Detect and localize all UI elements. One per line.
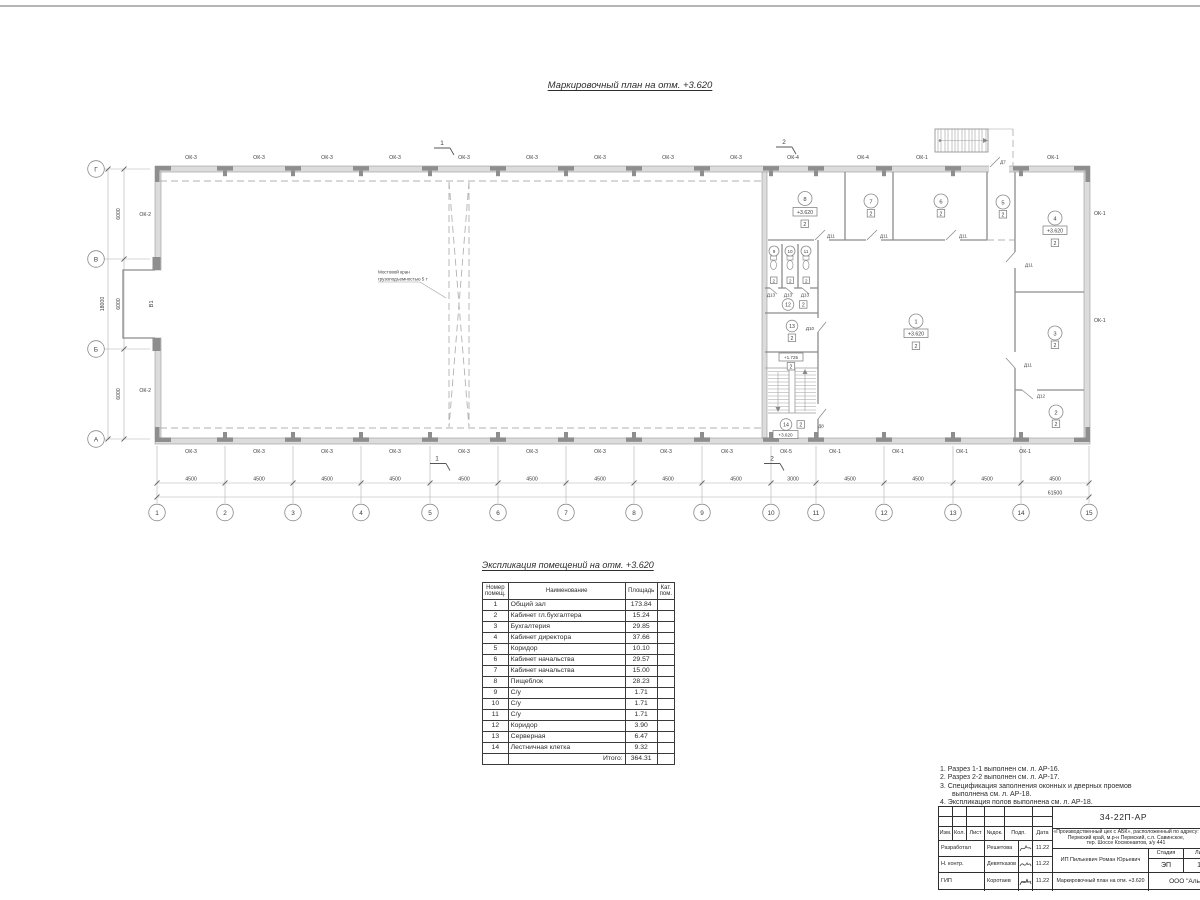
schedule-row: 3 Бухгалтерия 29.85 — [483, 622, 675, 633]
room-area-cell: 3.90 — [625, 721, 657, 732]
rev-cell — [953, 807, 967, 817]
grid-col-bubble: 9 — [700, 510, 704, 517]
person-name: Коротаев — [985, 873, 1019, 891]
room-number: 12 — [785, 303, 791, 309]
col-data: Дата — [1033, 827, 1053, 841]
room-number-cell: 3 — [483, 622, 509, 633]
door-label: Д7 — [1000, 160, 1006, 165]
room-markers: 8 +3.620 2 7 2 6 2 5 2 4 +3.620 2 1 +3.6… — [769, 192, 1067, 439]
grid-col-bubble: 5 — [428, 510, 432, 517]
note-item: 2. Разрез 2-2 выполнен см. л. АР-17. — [940, 774, 1140, 782]
room-cat-cell — [657, 721, 674, 732]
category-mark: 2 — [1054, 241, 1057, 247]
door-label: Д8 — [818, 424, 824, 429]
room-number-cell: 14 — [483, 743, 509, 754]
role-label: Разработал — [939, 841, 985, 857]
room-schedule: Номерпомещ. Наименование Площадь Кат.пом… — [482, 582, 675, 765]
sheet-label: Лист — [1184, 849, 1200, 859]
room-name-cell: Кабинет гл.бухгалтера — [508, 611, 625, 622]
window-label: ОК-1 — [1047, 155, 1059, 161]
toilet-fixture — [771, 256, 810, 270]
category-mark: 2 — [940, 211, 943, 217]
dim-bay: 4500 — [389, 477, 401, 483]
room-name-cell: Кабинет директора — [508, 633, 625, 644]
col-kol: Кол. — [953, 827, 967, 841]
room-area-cell: 1.71 — [625, 688, 657, 699]
room-cat-cell — [657, 600, 674, 611]
total-label: Итого: — [508, 754, 625, 765]
dim-bay: 4500 — [458, 477, 470, 483]
dim-bay: 4500 — [662, 477, 674, 483]
header-area: Площадь — [625, 583, 657, 600]
room-cat-cell — [657, 688, 674, 699]
window-label: ОК-3 — [526, 155, 538, 161]
grid-col-bubble: 10 — [767, 510, 775, 517]
room-number: 9 — [773, 249, 776, 254]
grid-col-bubble: 6 — [496, 510, 500, 517]
room-number: 11 — [804, 249, 809, 254]
section-mark-2: 2 — [782, 139, 786, 146]
room-name-cell: С/у — [508, 688, 625, 699]
category-mark: 2 — [791, 336, 794, 342]
grid-row-bubble: А — [94, 436, 99, 443]
room-number-cell: 4 — [483, 633, 509, 644]
door-label: Д11 — [827, 234, 835, 239]
dim-bay: 4500 — [981, 477, 993, 483]
door-label: Д10 — [806, 326, 815, 331]
schedule-row: 1 Общий зал 173.84 — [483, 600, 675, 611]
window-label: ОК-1 — [1094, 211, 1106, 217]
header-category: Кат.пом. — [657, 583, 674, 600]
room-area-cell: 37.66 — [625, 633, 657, 644]
grid-bubbles: 1 2 3 4 5 6 7 8 9 10 11 12 13 14 15 Г В … — [88, 161, 1098, 521]
window-labels: ОК-3 ОК-3 ОК-3 ОК-3 ОК-3 ОК-3 ОК-3 ОК-3 … — [139, 155, 1105, 455]
project-address: «Производственный цех с АБК», расположен… — [1053, 829, 1200, 849]
schedule-total-row: Итого: 364.31 — [483, 754, 675, 765]
grid-col-bubble: 8 — [632, 510, 636, 517]
window-label: ОК-1 — [892, 449, 904, 455]
room-name-cell: Лестничная клетка — [508, 743, 625, 754]
person-name: Решетова — [985, 841, 1019, 857]
window-label: ОК-3 — [594, 449, 606, 455]
category-mark: 2 — [773, 278, 776, 283]
floor-plan: 4500 4500 4500 4500 4500 4500 4500 4500 … — [0, 0, 1200, 545]
category-mark: 2 — [803, 222, 806, 228]
signature — [1019, 857, 1033, 873]
category-mark: 2 — [789, 278, 792, 283]
room-number: 14 — [783, 423, 789, 429]
window-label: ОК-3 — [730, 155, 742, 161]
door-label: Д11 — [1025, 263, 1033, 268]
dim-bay: 4500 — [526, 477, 538, 483]
level-mark: +3.620 — [778, 433, 793, 438]
notes-list: 1. Разрез 1-1 выполнен см. л. АР-16.2. Р… — [940, 766, 1140, 807]
section-mark-1: 1 — [435, 456, 439, 463]
rev-cell — [939, 807, 953, 817]
dim-bay: 4500 — [594, 477, 606, 483]
window-label: ОК-3 — [721, 449, 733, 455]
level-mark: +3.620 — [908, 331, 924, 337]
signature — [1019, 873, 1033, 891]
door-label: Д11 — [959, 234, 967, 239]
window-label: ОК-3 — [526, 449, 538, 455]
role-label: Н. контр. — [939, 857, 985, 873]
dim-bay-small: 3000 — [787, 477, 799, 483]
rev-cell — [1033, 807, 1053, 817]
dim-total: 61500 — [1048, 491, 1063, 497]
room-cat-cell — [657, 677, 674, 688]
room-number-cell: 11 — [483, 710, 509, 721]
window-label: ОК-4 — [787, 155, 799, 161]
schedule-title: Экспликация помещений на отм. +3.620 — [482, 560, 654, 570]
category-mark: 2 — [805, 278, 808, 283]
category-mark: 2 — [1055, 422, 1058, 428]
room-area-cell: 29.57 — [625, 655, 657, 666]
window-label: ОК-1 — [829, 449, 841, 455]
exterior-walls — [123, 166, 1090, 445]
dim-bay: 4500 — [730, 477, 742, 483]
dim-row: 6000 — [116, 208, 122, 220]
window-label: ОК-5 — [780, 449, 792, 455]
room-area-cell: 29.85 — [625, 622, 657, 633]
schedule-row: 12 Коридор 3.90 — [483, 721, 675, 732]
category-mark: 2 — [870, 211, 873, 217]
room-number: 7 — [869, 199, 872, 205]
window-label: ОК-3 — [253, 449, 265, 455]
door-label: Д13 — [767, 293, 776, 298]
room-cat-cell — [657, 655, 674, 666]
window-label: ОК-3 — [321, 155, 333, 161]
level-mark: +3.620 — [1047, 228, 1063, 234]
role-label: ГИП — [939, 873, 985, 891]
rev-cell — [939, 817, 953, 827]
grid-row-bubble: В — [94, 256, 98, 263]
category-mark: 2 — [790, 364, 793, 370]
window-label: ОК-3 — [458, 449, 470, 455]
drawing-title: Маркировочный план на отм. +3.620 — [1053, 873, 1149, 891]
room-area-cell: 173.84 — [625, 600, 657, 611]
room-number: 2 — [1054, 410, 1057, 416]
col-podp: Подп. — [1005, 827, 1033, 841]
sign-date: 11.22 — [1033, 841, 1053, 857]
room-number: 6 — [939, 199, 942, 205]
schedule-row: 7 Кабинет начальства 15.00 — [483, 666, 675, 677]
room-number-cell: 2 — [483, 611, 509, 622]
room-area-cell: 1.71 — [625, 699, 657, 710]
window-label: ОК-1 — [1094, 318, 1106, 324]
room-number-cell: 7 — [483, 666, 509, 677]
schedule-row: 11 С/у 1.71 — [483, 710, 675, 721]
note-item: 3. Спецификация заполнения оконных и две… — [940, 783, 1140, 800]
room-name-cell: Бухгалтерия — [508, 622, 625, 633]
crane-bridge: Мостовой кран грузоподъемностью 5 т — [160, 181, 762, 428]
section-mark-2: 2 — [770, 456, 774, 463]
window-label: ОК-1 — [956, 449, 968, 455]
category-mark: 2 — [1054, 343, 1057, 349]
schedule-row: 14 Лестничная клетка 9.32 — [483, 743, 675, 754]
window-label: ОК-2 — [139, 388, 151, 394]
sign-date: 11.22 — [1033, 857, 1053, 873]
grid-col-bubble: 2 — [223, 510, 227, 517]
window-label: ОК-1 — [1019, 449, 1031, 455]
grid-col-bubble: 12 — [880, 510, 888, 517]
room-area-cell: 28.23 — [625, 677, 657, 688]
window-label: ОК-3 — [253, 155, 265, 161]
window-label: ОК-3 — [660, 449, 672, 455]
sheet-value: 13 — [1184, 859, 1200, 873]
room-area-cell: 15.00 — [625, 666, 657, 677]
window-label: ОК-4 — [857, 155, 869, 161]
window-label: ОК-3 — [662, 155, 674, 161]
room-name-cell: С/у — [508, 699, 625, 710]
window-label: ОК-3 — [321, 449, 333, 455]
schedule-row: 10 С/у 1.71 — [483, 699, 675, 710]
room-number-cell: 12 — [483, 721, 509, 732]
project-line: тер. Шоссе Космонавтов, з/у 441 — [1087, 841, 1166, 846]
room-name-cell: Кабинет начальства — [508, 655, 625, 666]
window-label: ОК-3 — [185, 155, 197, 161]
rev-cell — [967, 807, 985, 817]
door-label: Д13 — [801, 293, 810, 298]
company-name: ООО "Альфа — [1149, 873, 1200, 891]
window-label: ОК-3 — [389, 155, 401, 161]
header-room-number: Номерпомещ. — [483, 583, 509, 600]
col-ndoc: №док. — [985, 827, 1005, 841]
dim-bay: 4500 — [253, 477, 265, 483]
room-cat-cell — [657, 743, 674, 754]
room-area-cell: 6.47 — [625, 732, 657, 743]
schedule-row: 4 Кабинет директора 37.66 — [483, 633, 675, 644]
room-number: 5 — [1001, 200, 1004, 206]
window-label: ОК-2 — [139, 212, 151, 218]
client-name: ИП Пилькевич Роман Юрьевич — [1053, 849, 1149, 873]
room-name-cell: Коридор — [508, 721, 625, 732]
room-cat-cell — [657, 644, 674, 655]
columns — [153, 166, 1091, 442]
stage-label: Стадия — [1149, 849, 1184, 859]
total-empty-cell — [483, 754, 509, 765]
window-label: ОК-3 — [185, 449, 197, 455]
section-mark-1: 1 — [440, 140, 444, 147]
dim-bay: 4500 — [185, 477, 197, 483]
room-number: 10 — [787, 249, 793, 254]
room-cat-cell — [657, 732, 674, 743]
schedule-row: 9 С/у 1.71 — [483, 688, 675, 699]
crane-note-line1: Мостовой кран — [378, 269, 410, 275]
room-area-cell: 10.10 — [625, 644, 657, 655]
total-cat-cell — [657, 754, 674, 765]
dim-row-total: 18000 — [100, 297, 106, 312]
room-number-cell: 1 — [483, 600, 509, 611]
window-label: ОК-3 — [458, 155, 470, 161]
schedule-header-row: Номерпомещ. Наименование Площадь Кат.пом… — [483, 583, 675, 600]
room-name-cell: Коридор — [508, 644, 625, 655]
rev-cell — [1033, 817, 1053, 827]
sign-date: 11.22 — [1033, 873, 1053, 891]
room-schedule-body: 1 Общий зал 173.84 2 Кабинет гл.бухгалте… — [483, 600, 675, 754]
note-item: 1. Разрез 1-1 выполнен см. л. АР-16. — [940, 766, 1140, 774]
schedule-row: 5 Коридор 10.10 — [483, 644, 675, 655]
schedule-row: 8 Пищеблок 28.23 — [483, 677, 675, 688]
person-name: Девятказов — [985, 857, 1019, 873]
office-block — [765, 129, 1084, 438]
room-name-cell: Серверная — [508, 732, 625, 743]
col-izm: Изм. — [939, 827, 953, 841]
window-label: ОК-1 — [916, 155, 928, 161]
room-number-cell: 8 — [483, 677, 509, 688]
room-number: 8 — [803, 197, 806, 203]
gate-label: В1 — [149, 300, 155, 307]
schedule-row: 6 Кабинет начальства 29.57 — [483, 655, 675, 666]
dim-bay: 4500 — [844, 477, 856, 483]
room-cat-cell — [657, 622, 674, 633]
grid-col-bubble: 3 — [291, 510, 295, 517]
grid-col-bubble: 7 — [564, 510, 568, 517]
title-block: Изм. Кол. Лист №док. Подп. Дата Разработ… — [938, 806, 1200, 890]
grid-col-bubble: 4 — [359, 510, 363, 517]
room-number: 3 — [1053, 331, 1056, 337]
section-markers: 1 2 1 2 — [430, 139, 796, 471]
grid-col-bubble: 14 — [1017, 510, 1025, 517]
rev-cell — [1005, 807, 1033, 817]
total-area: 364.31 — [625, 754, 657, 765]
room-area-cell: 1.71 — [625, 710, 657, 721]
room-number: 13 — [789, 324, 795, 330]
room-cat-cell — [657, 611, 674, 622]
room-number-cell: 9 — [483, 688, 509, 699]
grid-col-bubble: 11 — [813, 510, 820, 517]
rev-cell — [985, 807, 1005, 817]
room-name-cell: Общий зал — [508, 600, 625, 611]
grid-row-bubble: Б — [94, 346, 98, 353]
grid-col-bubble: 15 — [1085, 510, 1093, 517]
schedule-row: 2 Кабинет гл.бухгалтера 15.24 — [483, 611, 675, 622]
room-cat-cell — [657, 633, 674, 644]
signature — [1019, 841, 1033, 857]
room-area-cell: 9.32 — [625, 743, 657, 754]
window-label: ОК-3 — [389, 449, 401, 455]
window-label: ОК-3 — [594, 155, 606, 161]
level-mark: +3.620 — [797, 210, 813, 216]
room-number-cell: 10 — [483, 699, 509, 710]
category-mark: 2 — [802, 303, 805, 309]
room-number-cell: 6 — [483, 655, 509, 666]
grid-col-bubble: 1 — [155, 510, 159, 517]
level-mark: +1.725 — [784, 355, 799, 360]
room-name-cell: С/у — [508, 710, 625, 721]
grid-col-bubble: 13 — [949, 510, 957, 517]
category-mark: 2 — [799, 423, 802, 429]
room-number: 1 — [914, 319, 917, 325]
room-cat-cell — [657, 699, 674, 710]
category-mark: 2 — [1002, 212, 1005, 218]
grid-row-bubble: Г — [94, 166, 98, 173]
stage-value: ЭП — [1149, 859, 1184, 873]
rev-cell — [985, 817, 1005, 827]
category-mark: 2 — [915, 344, 918, 350]
header-name: Наименование — [508, 583, 625, 600]
door-label: Д11 — [1024, 363, 1032, 368]
room-area-cell: 15.24 — [625, 611, 657, 622]
door-label: Д12 — [1037, 394, 1046, 399]
door-label: Д11 — [880, 234, 888, 239]
room-number-cell: 13 — [483, 732, 509, 743]
room-cat-cell — [657, 710, 674, 721]
dim-bay: 4500 — [321, 477, 333, 483]
exterior-stair — [935, 129, 1013, 152]
rev-cell — [1005, 817, 1033, 827]
door-label: Д13 — [784, 293, 793, 298]
rev-cell — [953, 817, 967, 827]
schedule-row: 13 Серверная 6.47 — [483, 732, 675, 743]
drawing-sheet: Маркировочный план на отм. +3.620 4500 4… — [0, 0, 1200, 900]
room-number-cell: 5 — [483, 644, 509, 655]
col-list: Лист — [967, 827, 985, 841]
dim-bay: 4500 — [1049, 477, 1061, 483]
rev-cell — [967, 817, 985, 827]
room-cat-cell — [657, 666, 674, 677]
room-name-cell: Кабинет начальства — [508, 666, 625, 677]
dim-row: 6000 — [116, 388, 122, 400]
room-name-cell: Пищеблок — [508, 677, 625, 688]
dim-row: 6000 — [116, 298, 122, 310]
crane-note-line2: грузоподъемностью 5 т — [378, 277, 429, 282]
document-code: 34-22П-АР — [1053, 807, 1200, 829]
dim-bay: 4500 — [912, 477, 924, 483]
